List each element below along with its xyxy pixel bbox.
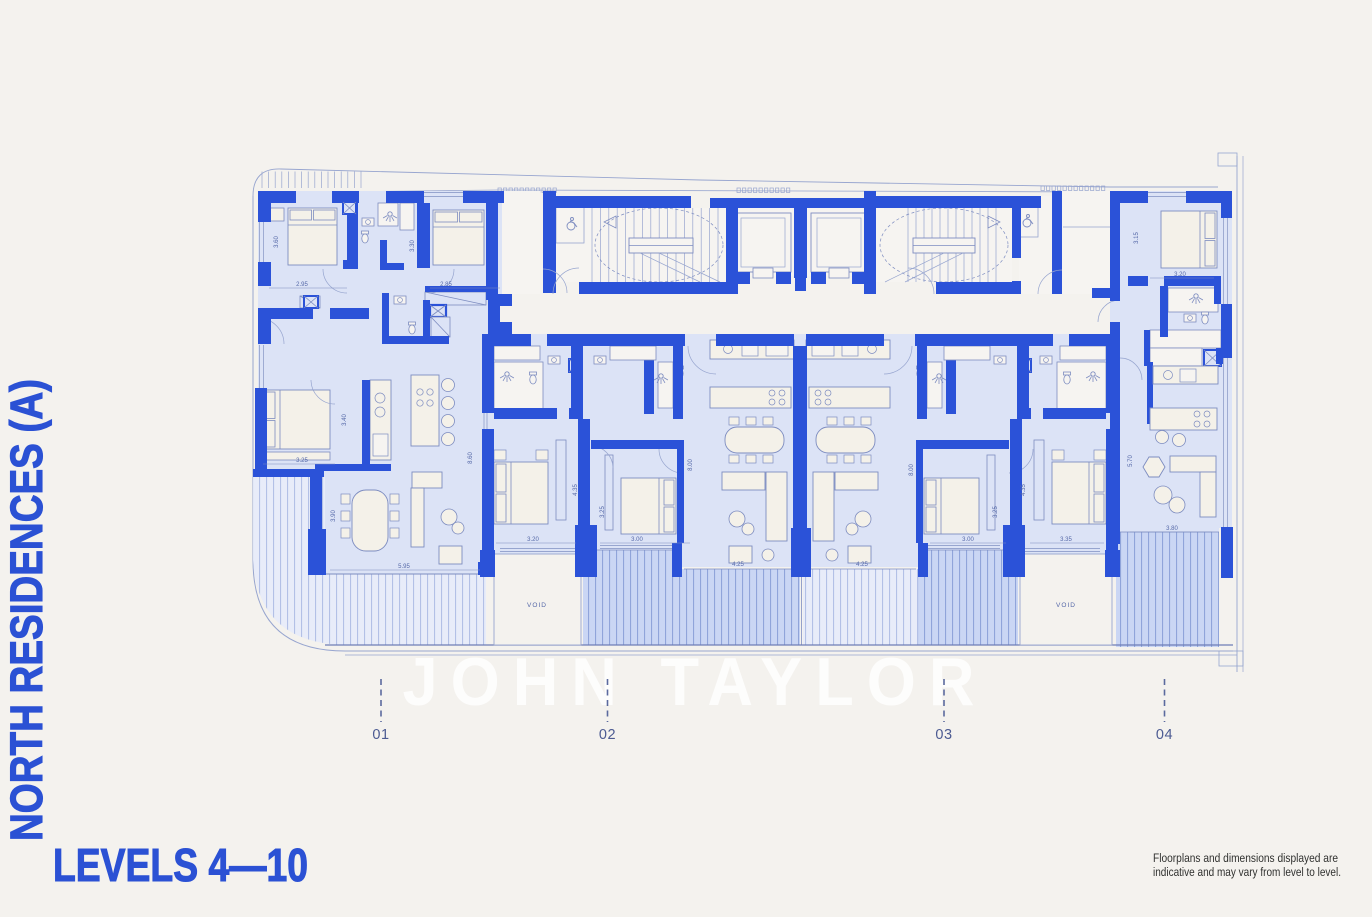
svg-text:5.95: 5.95	[398, 564, 410, 570]
svg-text:JOHN TAYLOR: JOHN TAYLOR	[403, 644, 988, 720]
svg-text:2.85: 2.85	[440, 282, 452, 288]
svg-text:3.25: 3.25	[600, 506, 606, 518]
svg-text:indicative and may vary from l: indicative and may vary from level to le…	[1153, 865, 1341, 879]
svg-text:4.35: 4.35	[573, 484, 579, 496]
svg-text:04: 04	[1156, 727, 1173, 743]
svg-text:LEVELS 4—10: LEVELS 4—10	[53, 839, 308, 891]
svg-text:3.20: 3.20	[527, 537, 539, 543]
svg-text:3.35: 3.35	[1060, 537, 1072, 543]
svg-text:3.15: 3.15	[1134, 232, 1140, 244]
svg-text:3.40: 3.40	[342, 414, 348, 426]
svg-text:3.60: 3.60	[274, 236, 280, 248]
svg-text:3.00: 3.00	[631, 537, 643, 543]
svg-text:3.25: 3.25	[296, 458, 308, 464]
svg-text:3.20: 3.20	[1174, 272, 1186, 278]
svg-text:3.00: 3.00	[962, 537, 974, 543]
svg-text:3.30: 3.30	[410, 240, 416, 252]
svg-text:Floorplans and dimensions disp: Floorplans and dimensions displayed are	[1153, 851, 1338, 865]
svg-text:4.35: 4.35	[1021, 484, 1027, 496]
svg-text:3.90: 3.90	[331, 510, 337, 522]
svg-text:3.25: 3.25	[993, 506, 999, 518]
svg-text:NORTH RESIDENCES (A): NORTH RESIDENCES (A)	[1, 379, 52, 841]
svg-text:03: 03	[935, 727, 952, 743]
svg-text:8.00: 8.00	[909, 464, 915, 476]
svg-text:VOID: VOID	[1056, 602, 1076, 609]
svg-text:4.25: 4.25	[856, 562, 868, 568]
svg-text:2.95: 2.95	[296, 282, 308, 288]
svg-text:02: 02	[599, 727, 616, 743]
svg-text:VOID: VOID	[527, 602, 547, 609]
svg-text:8.00: 8.00	[688, 459, 694, 471]
svg-text:5.70: 5.70	[1128, 455, 1134, 467]
svg-text:8.60: 8.60	[468, 452, 474, 464]
svg-text:3.80: 3.80	[1166, 526, 1178, 532]
svg-text:4.25: 4.25	[732, 562, 744, 568]
svg-text:01: 01	[372, 727, 389, 743]
